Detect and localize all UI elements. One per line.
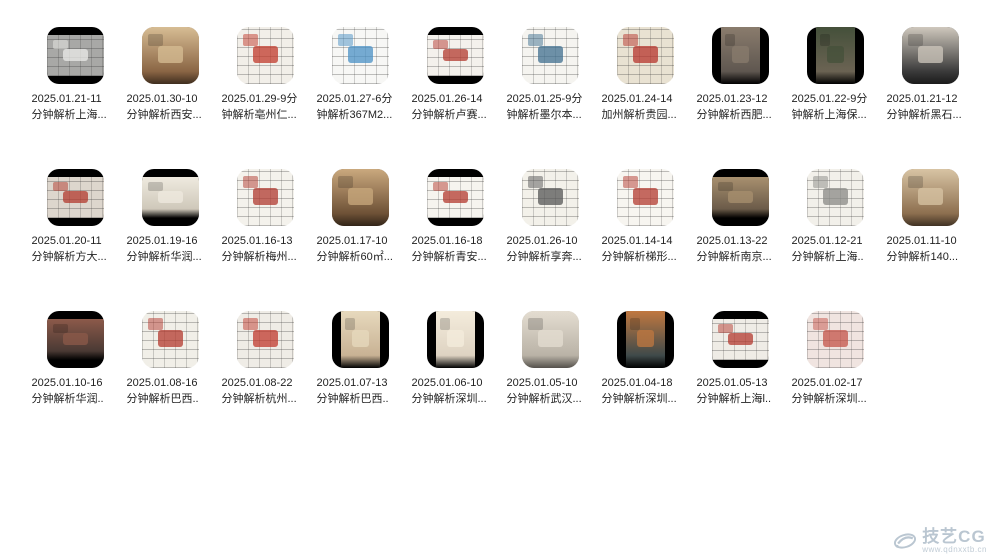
file-title: 分钟解析梅州... [222,249,310,265]
thumbnail-image [47,319,104,360]
thumbnail-row: 2025.01.21-11 分钟解析上海... 2025.01.30-10 分钟… [28,27,988,123]
file-thumbnail [807,169,864,226]
file-label: 2025.01.26-10 分钟解析享奔... [507,233,595,265]
file-title: 分钟解析华润.. [32,391,120,407]
file-date: 2025.01.08-22 [222,375,310,391]
file-item[interactable]: 2025.01.06-10 分钟解析深圳... [408,311,503,407]
file-title: 分钟解析卢赛... [412,107,500,123]
file-item[interactable]: 2025.01.25-9分 钟解析墨尔本... [503,27,598,123]
file-label: 2025.01.02-17 分钟解析深圳... [792,375,880,407]
file-thumbnail [712,27,769,84]
file-date: 2025.01.04-18 [602,375,690,391]
thumbnail-image [237,311,294,368]
file-date: 2025.01.13-22 [697,233,785,249]
thumbnail-detail [148,318,163,331]
file-thumbnail [427,311,484,368]
thumbnail-row: 2025.01.10-16 分钟解析华润.. 2025.01.08-16 分钟解… [28,311,988,407]
file-thumbnail [617,27,674,84]
file-date: 2025.01.08-16 [127,375,215,391]
file-label: 2025.01.12-21 分钟解析上海.. [792,233,880,265]
thumbnail-detail [352,330,369,347]
file-date: 2025.01.24-14 [602,91,690,107]
file-item[interactable]: 2025.01.21-11 分钟解析上海... [28,27,123,123]
thumbnail-detail [538,46,563,63]
file-date: 2025.01.23-12 [697,91,785,107]
file-thumbnail [522,169,579,226]
file-label: 2025.01.29-9分 钟解析亳州仁... [222,91,310,123]
file-title: 分钟解析上海... [32,107,120,123]
thumbnail-detail [433,40,448,49]
file-item[interactable]: 2025.01.27-6分 钟解析367M2... [313,27,408,123]
file-thumbnail [237,169,294,226]
file-thumbnail [807,27,864,84]
file-date: 2025.01.11-10 [887,233,975,249]
file-title: 分钟解析西安... [127,107,215,123]
file-title: 加州解析贵园... [602,107,690,123]
file-gallery: 2025.01.21-11 分钟解析上海... 2025.01.30-10 分钟… [28,27,988,453]
file-date: 2025.01.14-14 [602,233,690,249]
file-thumbnail [142,27,199,84]
file-date: 2025.01.27-6分 [317,91,405,107]
thumbnail-detail [433,182,448,191]
thumbnail-detail [447,330,464,347]
file-label: 2025.01.08-22 分钟解析杭州... [222,375,310,407]
file-thumbnail [902,169,959,226]
file-label: 2025.01.27-6分 钟解析367M2... [317,91,405,123]
thumbnail-detail [623,34,638,47]
thumbnail-detail [728,191,753,203]
file-item[interactable]: 2025.01.26-10 分钟解析享奔... [503,169,598,265]
thumbnail-detail [158,46,183,63]
file-item[interactable]: 2025.01.23-12 分钟解析西肥... [693,27,788,123]
file-thumbnail [47,169,104,226]
thumbnail-detail [63,333,88,345]
file-date: 2025.01.22-9分 [792,91,880,107]
file-title: 钟解析上海保... [792,107,880,123]
thumbnail-detail [528,34,543,47]
file-date: 2025.01.19-16 [127,233,215,249]
file-date: 2025.01.25-9分 [507,91,595,107]
thumbnail-detail [53,182,68,191]
thumbnail-image [436,311,475,368]
thumbnail-image [237,169,294,226]
file-thumbnail [617,311,674,368]
file-thumbnail [712,311,769,368]
thumbnail-detail [823,188,848,205]
file-date: 2025.01.21-11 [32,91,120,107]
file-item[interactable]: 2025.01.10-16 分钟解析华润.. [28,311,123,407]
file-date: 2025.01.12-21 [792,233,880,249]
thumbnail-image [47,35,104,76]
file-title: 钟解析墨尔本... [507,107,595,123]
file-date: 2025.01.06-10 [412,375,500,391]
file-item[interactable]: 2025.01.30-10 分钟解析西安... [123,27,218,123]
file-thumbnail [332,169,389,226]
file-label: 2025.01.11-10 分钟解析140... [887,233,975,265]
file-date: 2025.01.17-10 [317,233,405,249]
thumbnail-detail [908,34,923,47]
thumbnail-image [712,319,769,360]
thumbnail-image [332,27,389,84]
watermark-brand: 技艺CG [922,528,986,545]
file-title: 钟解析367M2... [317,107,405,123]
file-item[interactable]: 2025.01.19-16 分钟解析华润... [123,169,218,265]
file-item[interactable]: 2025.01.16-18 分钟解析青安... [408,169,503,265]
file-label: 2025.01.24-14 加州解析贵园... [602,91,690,123]
watermark-text: 技艺CG www.qdnxxtb.cn [922,528,987,554]
thumbnail-detail [813,176,828,189]
file-title: 分钟解析巴西.. [317,391,405,407]
thumbnail-image [237,27,294,84]
file-thumbnail [332,27,389,84]
thumbnail-detail [637,330,654,347]
file-thumbnail [332,311,389,368]
file-title: 分钟解析杭州... [222,391,310,407]
file-thumbnail [807,311,864,368]
file-label: 2025.01.17-10 分钟解析60㎡... [317,233,405,265]
file-item[interactable]: 2025.01.21-12 分钟解析黑石... [883,27,978,123]
thumbnail-detail [63,191,88,203]
thumbnail-image [427,177,484,218]
thumbnail-detail [718,182,733,191]
file-title: 分钟解析60㎡... [317,249,405,265]
thumbnail-detail [718,324,733,333]
thumbnail-image [47,177,104,218]
file-label: 2025.01.16-18 分钟解析青安... [412,233,500,265]
thumbnail-detail [53,324,68,333]
thumbnail-image [341,311,380,368]
file-title: 分钟解析南京... [697,249,785,265]
file-label: 2025.01.06-10 分钟解析深圳... [412,375,500,407]
thumbnail-detail [243,34,258,47]
file-date: 2025.01.21-12 [887,91,975,107]
file-label: 2025.01.10-16 分钟解析华润.. [32,375,120,407]
file-title: 分钟解析享奔... [507,249,595,265]
file-thumbnail [902,27,959,84]
thumbnail-detail [528,318,543,331]
file-date: 2025.01.02-17 [792,375,880,391]
file-title: 分钟解析青安... [412,249,500,265]
file-label: 2025.01.22-9分 钟解析上海保... [792,91,880,123]
thumbnail-detail [443,49,468,61]
thumbnail-image [427,35,484,76]
file-item[interactable]: 2025.01.04-18 分钟解析深圳... [598,311,693,407]
thumbnail-image [522,311,579,368]
thumbnail-image [142,27,199,84]
file-item[interactable]: 2025.01.05-10 分钟解析武汉... [503,311,598,407]
file-title: 分钟解析上海.. [792,249,880,265]
file-label: 2025.01.21-11 分钟解析上海... [32,91,120,123]
file-label: 2025.01.21-12 分钟解析黑石... [887,91,975,123]
file-thumbnail [47,311,104,368]
thumbnail-detail [158,330,183,347]
file-label: 2025.01.04-18 分钟解析深圳... [602,375,690,407]
file-title: 分钟解析深圳... [792,391,880,407]
thumbnail-image [902,169,959,226]
thumbnail-detail [827,46,844,63]
file-date: 2025.01.05-10 [507,375,595,391]
thumbnail-image [142,177,199,218]
thumbnail-detail [53,40,68,49]
thumbnail-detail [538,330,563,347]
file-date: 2025.01.26-10 [507,233,595,249]
file-title: 分钟解析西肥... [697,107,785,123]
file-item[interactable]: 2025.01.07-13 分钟解析巴西.. [313,311,408,407]
file-thumbnail [142,169,199,226]
thumbnail-detail [348,46,373,63]
thumbnail-image [902,27,959,84]
thumbnail-detail [63,49,88,61]
file-title: 分钟解析140... [887,249,975,265]
file-title: 分钟解析梯形... [602,249,690,265]
watermark-url: www.qdnxxtb.cn [922,545,987,554]
file-date: 2025.01.16-13 [222,233,310,249]
file-label: 2025.01.23-12 分钟解析西肥... [697,91,785,123]
file-item[interactable]: 2025.01.24-14 加州解析贵园... [598,27,693,123]
file-item[interactable]: 2025.01.11-10 分钟解析140... [883,169,978,265]
file-date: 2025.01.26-14 [412,91,500,107]
file-label: 2025.01.08-16 分钟解析巴西.. [127,375,215,407]
file-thumbnail [47,27,104,84]
file-title: 分钟解析深圳... [602,391,690,407]
thumbnail-detail [633,188,658,205]
thumbnail-detail [443,191,468,203]
file-title: 分钟解析方大... [32,249,120,265]
file-label: 2025.01.16-13 分钟解析梅州... [222,233,310,265]
file-title: 钟解析亳州仁... [222,107,310,123]
file-label: 2025.01.26-14 分钟解析卢赛... [412,91,500,123]
file-label: 2025.01.30-10 分钟解析西安... [127,91,215,123]
file-item[interactable]: 2025.01.05-13 分钟解析上海l.. [693,311,788,407]
file-item[interactable]: 2025.01.17-10 分钟解析60㎡... [313,169,408,265]
thumbnail-image [816,27,855,84]
file-item[interactable]: 2025.01.26-14 分钟解析卢赛... [408,27,503,123]
thumbnail-image [617,169,674,226]
file-item[interactable]: 2025.01.12-21 分钟解析上海.. [788,169,883,265]
file-item[interactable]: 2025.01.08-16 分钟解析巴西.. [123,311,218,407]
file-label: 2025.01.13-22 分钟解析南京... [697,233,785,265]
thumbnail-detail [338,176,353,189]
file-thumbnail [522,311,579,368]
thumbnail-image [617,27,674,84]
thumbnail-detail [338,34,353,47]
thumbnail-image [807,169,864,226]
thumbnail-detail [918,188,943,205]
file-thumbnail [427,27,484,84]
file-label: 2025.01.07-13 分钟解析巴西.. [317,375,405,407]
file-label: 2025.01.05-10 分钟解析武汉... [507,375,595,407]
file-date: 2025.01.05-13 [697,375,785,391]
file-date: 2025.01.29-9分 [222,91,310,107]
thumbnail-detail [158,191,183,203]
thumbnail-image [522,27,579,84]
thumbnail-detail [728,333,753,345]
thumbnail-detail [253,188,278,205]
thumbnail-image [142,311,199,368]
thumbnail-detail [732,46,749,63]
thumbnail-detail [630,318,640,331]
thumbnail-image [712,177,769,218]
file-label: 2025.01.05-13 分钟解析上海l.. [697,375,785,407]
thumbnail-detail [623,176,638,189]
thumbnail-detail [813,318,828,331]
file-item[interactable]: 2025.01.14-14 分钟解析梯形... [598,169,693,265]
file-title: 分钟解析巴西.. [127,391,215,407]
brand-logo-icon [892,530,918,552]
thumbnail-image [332,169,389,226]
watermark: 技艺CG www.qdnxxtb.cn [892,528,987,554]
file-thumbnail [522,27,579,84]
file-label: 2025.01.20-11 分钟解析方大... [32,233,120,265]
file-title: 分钟解析黑石... [887,107,975,123]
file-item[interactable]: 2025.01.22-9分 钟解析上海保... [788,27,883,123]
file-item[interactable]: 2025.01.08-22 分钟解析杭州... [218,311,313,407]
file-title: 分钟解析华润... [127,249,215,265]
file-label: 2025.01.25-9分 钟解析墨尔本... [507,91,595,123]
thumbnail-detail [918,46,943,63]
thumbnail-image [522,169,579,226]
thumbnail-image [721,27,760,84]
thumbnail-detail [440,318,450,331]
file-item[interactable]: 2025.01.13-22 分钟解析南京... [693,169,788,265]
thumbnail-image [626,311,665,368]
file-title: 分钟解析武汉... [507,391,595,407]
thumbnail-detail [908,176,923,189]
file-date: 2025.01.07-13 [317,375,405,391]
file-thumbnail [617,169,674,226]
file-item[interactable]: 2025.01.16-13 分钟解析梅州... [218,169,313,265]
file-date: 2025.01.16-18 [412,233,500,249]
thumbnail-detail [243,176,258,189]
thumbnail-detail [148,182,163,191]
thumbnail-detail [148,34,163,47]
file-date: 2025.01.30-10 [127,91,215,107]
file-date: 2025.01.20-11 [32,233,120,249]
file-label: 2025.01.19-16 分钟解析华润... [127,233,215,265]
thumbnail-detail [348,188,373,205]
thumbnail-image [807,311,864,368]
thumbnail-detail [633,46,658,63]
file-item[interactable]: 2025.01.29-9分 钟解析亳州仁... [218,27,313,123]
file-date: 2025.01.10-16 [32,375,120,391]
file-thumbnail [142,311,199,368]
file-title: 分钟解析深圳... [412,391,500,407]
thumbnail-detail [253,330,278,347]
thumbnail-detail [823,330,848,347]
thumbnail-detail [528,176,543,189]
thumbnail-detail [820,34,830,47]
file-item[interactable]: 2025.01.20-11 分钟解析方大... [28,169,123,265]
thumbnail-detail [725,34,735,47]
file-label: 2025.01.14-14 分钟解析梯形... [602,233,690,265]
thumbnail-detail [345,318,355,331]
thumbnail-detail [253,46,278,63]
thumbnail-detail [243,318,258,331]
file-item[interactable]: 2025.01.02-17 分钟解析深圳... [788,311,883,407]
file-thumbnail [427,169,484,226]
thumbnail-row: 2025.01.20-11 分钟解析方大... 2025.01.19-16 分钟… [28,169,988,265]
file-thumbnail [712,169,769,226]
file-thumbnail [237,27,294,84]
thumbnail-detail [538,188,563,205]
file-thumbnail [237,311,294,368]
file-title: 分钟解析上海l.. [697,391,785,407]
